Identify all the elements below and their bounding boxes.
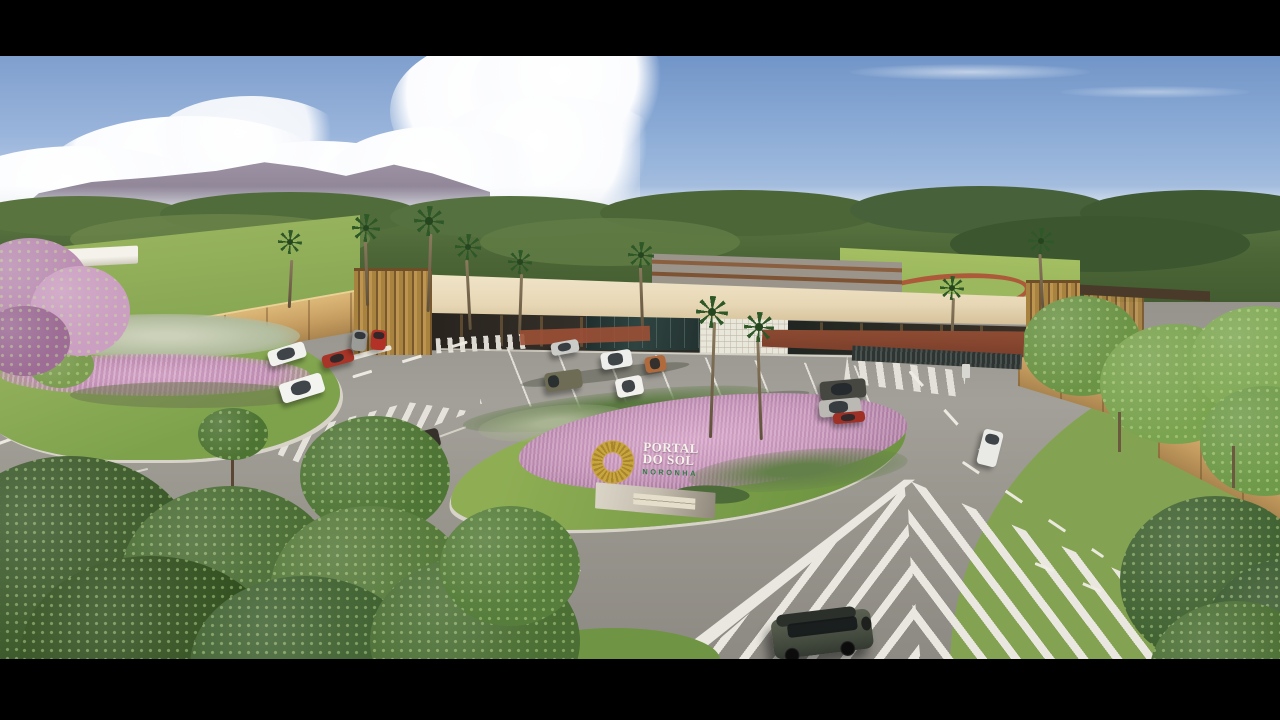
car-red-parked (370, 330, 386, 351)
dark-grass-patch (70, 382, 310, 408)
sign-text: PORTAL DO SOL NORONHA (642, 441, 743, 479)
scene: PORTAL DO SOL NORONHA (0, 56, 1280, 660)
tree-canopy (198, 408, 268, 460)
cloud (1060, 86, 1250, 98)
tree-canopy (440, 506, 580, 626)
sun-wreath-texture (588, 437, 638, 487)
letterbox-top (0, 0, 1280, 56)
sign-line-3: NORONHA (642, 467, 742, 479)
car-bronze-compact (644, 354, 667, 373)
cloud (850, 64, 1090, 80)
car-gray-parked (351, 329, 368, 351)
gate-pillar (962, 364, 970, 378)
letterbox-bottom (0, 659, 1280, 720)
tree-trunk (1118, 412, 1121, 452)
sign-line-2: DO SOL (643, 453, 743, 468)
monument-sign: PORTAL DO SOL NORONHA (586, 431, 749, 533)
car-dark-suv-parked (819, 378, 866, 401)
tree-trunk (1232, 446, 1235, 488)
video-frame: PORTAL DO SOL NORONHA (0, 0, 1280, 720)
